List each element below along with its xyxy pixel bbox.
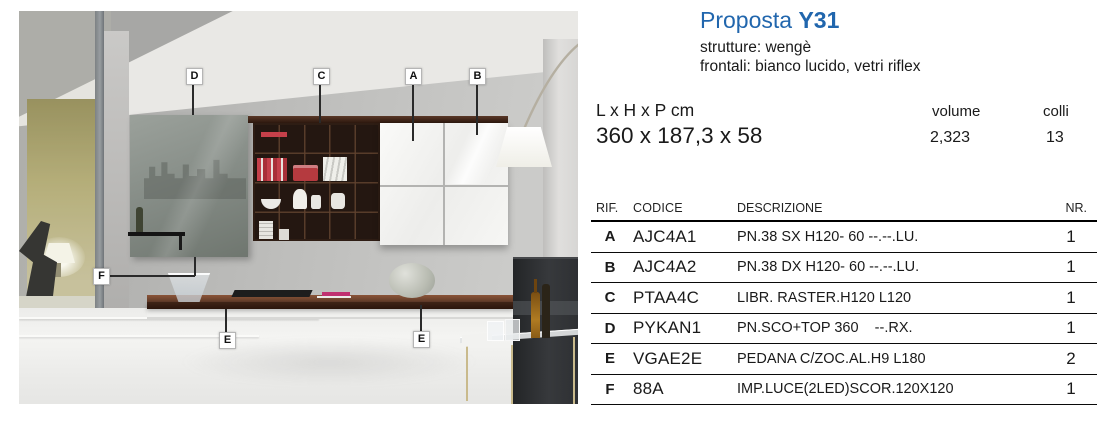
drinking-glass [487,321,504,341]
parts-table: RIF. CODICE DESCRIZIONE NR. A AJC4A1 PN.… [591,196,1097,405]
leader-line-f-horizontal [108,275,195,277]
ref-label-b: B [469,68,486,85]
table-row: F 88A IMP.LUCE(2LED)SCOR.120X120 1 [591,375,1097,406]
ref-label-a: A [405,68,422,85]
col-header-descrizione: DESCRIZIONE [731,201,1045,215]
ref-label-f: F [93,268,110,285]
col-header-rif: RIF. [591,201,629,215]
black-decor-items [231,290,312,297]
leader-line-b [476,83,478,135]
red-book-on-bench [322,292,350,296]
cell-rif: E [591,350,629,367]
parts-table-header: RIF. CODICE DESCRIZIONE NR. [591,196,1097,222]
cell-codice: PTAA4C [629,288,731,308]
cell-codice: PYKAN1 [629,318,731,338]
cell-nr: 1 [1045,227,1097,247]
leader-line-a [412,83,414,141]
catalog-sheet: D C A B F E E Proposta Y31 strutture: we… [0,0,1110,424]
leader-line-f-vertical [194,257,196,276]
table-leg [466,341,468,401]
dimensions-value: 360 x 187,3 x 58 [596,123,762,149]
cell-descrizione: PN.38 DX H120- 60 --.--.LU. [731,259,1045,275]
ref-label-e-left: E [219,332,236,349]
cell-rif: C [591,289,629,306]
leader-line-c [319,83,321,123]
dark-bottle [542,284,550,338]
ref-label-c: C [313,68,330,85]
white-magazine [317,296,351,298]
amber-bottle [531,292,540,338]
cell-descrizione: LIBR. RASTER.H120 L120 [731,290,1045,306]
cell-rif: F [591,381,629,398]
col-header-codice: CODICE [629,201,731,215]
cell-descrizione: PN.38 SX H120- 60 --.--.LU. [731,229,1045,245]
leader-line-e-left [225,309,227,332]
colli-value: 13 [1046,129,1064,147]
cell-descrizione: PN.SCO+TOP 360 --.RX. [731,320,1045,336]
ref-label-e-right: E [413,331,430,348]
cell-codice: AJC4A1 [629,227,731,247]
cell-rif: A [591,228,629,245]
table-leg [573,337,575,404]
volume-label: volume [932,103,980,120]
cell-codice: AJC4A2 [629,257,731,277]
cell-rif: D [591,320,629,337]
table-row: C PTAA4C LIBR. RASTER.H120 L120 1 [591,283,1097,314]
table-row: A AJC4A1 PN.38 SX H120- 60 --.--.LU. 1 [591,222,1097,253]
ref-label-d: D [186,68,203,85]
cell-codice: 88A [629,379,731,399]
finish-fronts: frontali: bianco lucido, vetri riflex [700,58,921,76]
coral-sphere-decor [389,263,435,298]
colli-label: colli [1043,103,1069,120]
volume-value: 2,323 [930,129,970,147]
dimensions-label: L x H x P cm [596,100,694,121]
page-title: Proposta Y31 [700,7,839,34]
cell-nr: 1 [1045,257,1097,277]
table-row: E VGAE2E PEDANA C/ZOC.AL.H9 L180 2 [591,344,1097,375]
table-leg [511,345,513,404]
cell-rif: B [591,259,629,276]
table-row: D PYKAN1 PN.SCO+TOP 360 --.RX. 1 [591,314,1097,345]
amber-bottle-neck [534,279,537,293]
cell-descrizione: PEDANA C/ZOC.AL.H9 L180 [731,351,1045,367]
cell-nr: 2 [1045,349,1097,369]
title-prefix: Proposta [700,7,792,33]
finish-structures: strutture: wengè [700,39,811,57]
wenge-bench-front [147,302,513,309]
col-header-nr: NR. [1045,201,1097,215]
table-row: B AJC4A2 PN.38 DX H120- 60 --.--.LU. 1 [591,253,1097,284]
cell-nr: 1 [1045,379,1097,399]
product-photo: D C A B F E E [19,11,578,404]
title-code: Y31 [798,7,839,33]
cell-nr: 1 [1045,318,1097,338]
pedana-platform-e [147,308,513,319]
leader-line-e-right [420,305,422,331]
drinking-glass [505,319,520,341]
leader-line-d [192,83,194,115]
cell-descrizione: IMP.LUCE(2LED)SCOR.120X120 [731,381,1045,397]
cell-codice: VGAE2E [629,349,731,369]
cell-nr: 1 [1045,288,1097,308]
